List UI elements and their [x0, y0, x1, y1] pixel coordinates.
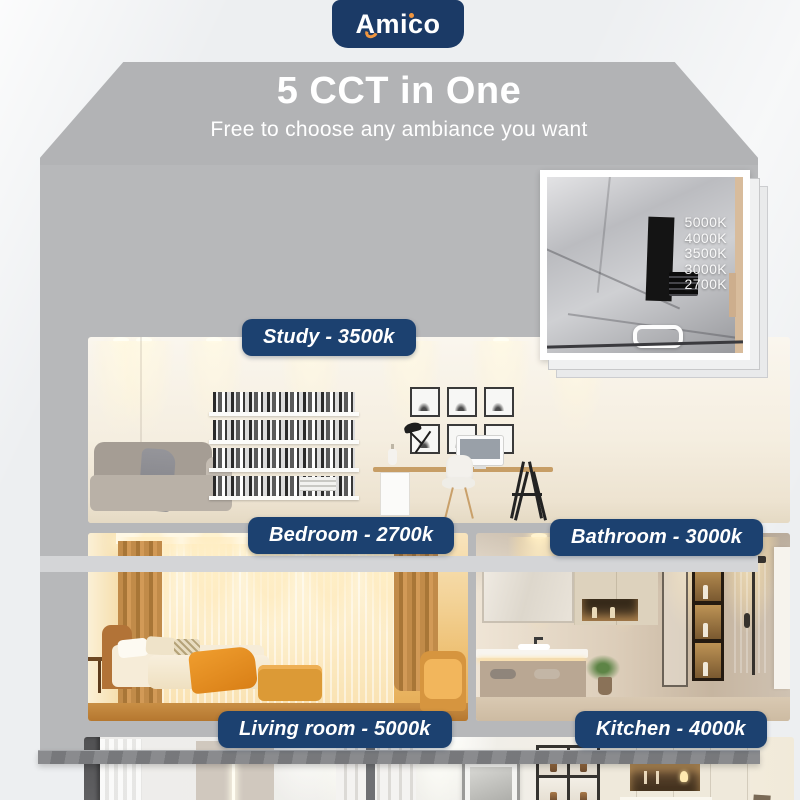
recessed-light-icon	[136, 337, 152, 343]
bedside-table-leg	[98, 661, 101, 693]
window-roller-blind	[84, 737, 100, 800]
sink	[518, 644, 550, 650]
room-label-bedroom: Bedroom - 2700k	[248, 517, 454, 554]
room-label-text: Bathroom - 3000k	[571, 526, 742, 548]
decor-lamp	[680, 771, 688, 782]
cct-switch-photo: 5000K 4000K 3500K 3000K 2700K	[547, 177, 743, 353]
room-label-text: Bedroom - 2700k	[269, 524, 433, 546]
desk-chair-seat	[442, 477, 475, 489]
wine-glass	[644, 771, 647, 784]
pillow	[117, 637, 149, 658]
room-label-text: Living room - 5000k	[239, 718, 431, 740]
backlit-kitchen-niche	[630, 763, 700, 791]
room-photo-study	[88, 337, 790, 523]
wall-panel	[774, 547, 790, 689]
brand-logo-badge: Amico	[332, 0, 464, 48]
cct-option: 5000K	[685, 215, 727, 231]
leaning-art-panel	[750, 794, 770, 800]
ad-canvas: Amico 5 CCT in One Free to choose any am…	[0, 0, 800, 800]
plant-pot	[598, 677, 612, 695]
vanity-counter	[476, 649, 588, 658]
book-row	[213, 448, 355, 468]
picture-frame	[484, 387, 514, 417]
towel	[534, 669, 560, 679]
cct-switch-inset-card: 5000K 4000K 3500K 3000K 2700K	[540, 170, 750, 360]
cabinet-shelf	[539, 778, 567, 800]
cct-option: 4000K	[685, 231, 727, 247]
toiletry-bottle	[610, 607, 615, 618]
niche-shelf	[695, 605, 721, 640]
floor-divider	[40, 556, 758, 572]
cct-option-list: 5000K 4000K 3500K 3000K 2700K	[685, 215, 727, 293]
wall-corner-line	[140, 337, 142, 457]
shower-pole	[752, 559, 755, 675]
logo-i-dot-icon	[409, 13, 414, 18]
niche-shelf	[695, 643, 721, 678]
book-row	[213, 392, 355, 412]
cct-option: 3000K	[685, 262, 727, 278]
room-label-kitchen: Kitchen - 4000k	[575, 711, 767, 748]
pillow	[145, 636, 176, 656]
stacked-books	[300, 477, 336, 491]
armchair	[420, 651, 466, 711]
page-title: 5 CCT in One	[277, 70, 522, 113]
room-label-text: Kitchen - 4000k	[596, 718, 746, 740]
recessed-light-icon	[206, 337, 222, 343]
bed-bench	[258, 665, 322, 701]
recessed-light-icon	[143, 533, 159, 539]
room-label-bathroom: Bathroom - 3000k	[550, 519, 763, 556]
easel-crossbar	[512, 493, 542, 496]
cabinet-shelf	[570, 778, 598, 800]
room-label-study: Study - 3500k	[242, 319, 416, 356]
computer-stand	[474, 466, 486, 469]
framed-artwork	[462, 759, 520, 800]
cct-option: 3500K	[685, 246, 727, 262]
fixture-edge	[729, 273, 736, 317]
desk-vase	[388, 449, 397, 465]
recessed-light-icon	[203, 533, 219, 539]
hand-shower	[744, 613, 750, 628]
desk-cabinet	[380, 472, 410, 516]
book-row	[213, 420, 355, 440]
page-subtitle: Free to choose any ambiance you want	[210, 118, 587, 142]
sofa-seat	[90, 475, 232, 511]
fixture-edge	[735, 177, 743, 353]
recessed-light-icon	[531, 533, 547, 539]
cct-option: 2700K	[685, 277, 727, 293]
room-label-living-room: Living room - 5000k	[218, 711, 452, 748]
roof-banner: 5 CCT in One Free to choose any ambiance…	[40, 62, 758, 165]
orange-throw-blanket	[188, 646, 258, 695]
room-label-text: Study - 3500k	[263, 326, 395, 348]
shower-niche-shelves	[692, 563, 724, 681]
foundation-slab	[38, 750, 760, 764]
vanity-cabinet	[480, 661, 586, 699]
toiletry-bottle	[592, 607, 597, 618]
picture-frame	[410, 387, 440, 417]
picture-frame	[447, 387, 477, 417]
recessed-light-icon	[493, 337, 509, 343]
towel	[490, 669, 516, 679]
wine-glass	[656, 771, 659, 784]
sheer-curtain	[100, 739, 142, 800]
